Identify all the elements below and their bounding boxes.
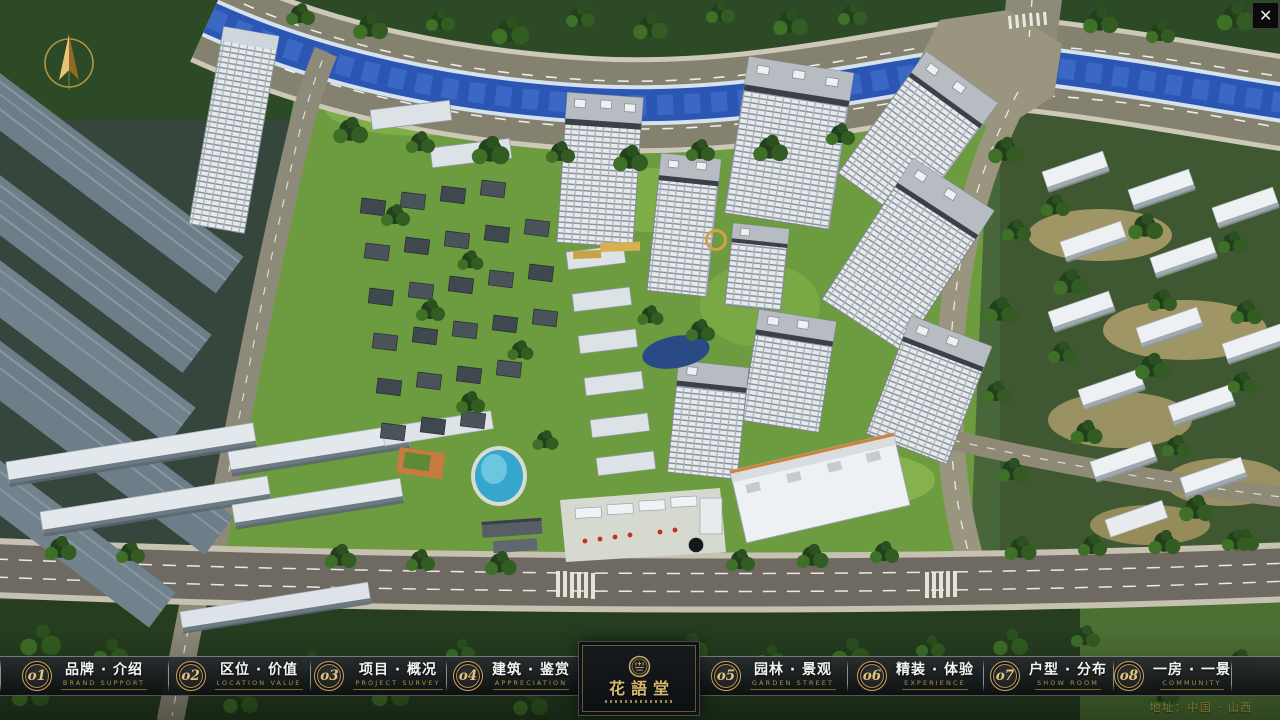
nav-number-badge: o8 — [1114, 661, 1144, 691]
nav-label-en: BRAND SUPPORT — [61, 679, 147, 690]
nav-label-zh: 建筑 · 鉴赏 — [492, 662, 570, 678]
brand-name: 花語堂 — [603, 680, 675, 698]
nav-number-badge: o5 — [711, 661, 741, 691]
nav-label-zh: 品牌 · 介绍 — [65, 662, 143, 678]
app-window: ✕ o1 品牌 · 介绍BRAND SUPPORT o2 区位 · 价值LOCA… — [0, 0, 1280, 720]
nav-number-badge: o6 — [857, 661, 887, 691]
nav-label-en: SHOW ROOM — [1035, 679, 1101, 690]
main-boulevard — [0, 559, 1280, 599]
nav-filler — [1232, 657, 1280, 695]
nav-label-en: LOCATION VALUE — [215, 679, 304, 690]
nav-number-badge: o2 — [176, 661, 206, 691]
nav-item-brand-intro[interactable]: o1 品牌 · 介绍BRAND SUPPORT — [1, 657, 168, 695]
nav-label-zh: 项目 · 概况 — [359, 662, 437, 678]
close-button[interactable]: ✕ — [1252, 2, 1279, 29]
nav-item-floorplan-distribution[interactable]: o7 户型 · 分布SHOW ROOM — [984, 657, 1113, 695]
brand-subtitle-line — [605, 700, 673, 703]
nav-label-en: GARDEN STREET — [750, 679, 836, 690]
master-plan-rendering[interactable] — [0, 0, 1280, 720]
nav-item-location-value[interactable]: o2 区位 · 价值LOCATION VALUE — [169, 657, 310, 695]
brand-logo-panel[interactable]: 花語堂 — [578, 641, 700, 716]
nav-item-architecture-appreciation[interactable]: o4 建筑 · 鉴赏APPRECIATION — [447, 657, 576, 695]
nav-item-interior-experience[interactable]: o6 精装 · 体验EXPERIENCE — [848, 657, 983, 695]
nav-number-badge: o3 — [314, 661, 344, 691]
nav-number-badge: o7 — [990, 661, 1020, 691]
nav-item-project-survey[interactable]: o3 项目 · 概况PROJECT SURVEY — [311, 657, 446, 695]
nav-label-en: PROJECT SURVEY — [353, 679, 442, 690]
nav-label-en: COMMUNITY — [1160, 679, 1223, 690]
nav-number-badge: o4 — [453, 661, 483, 691]
nav-label-en: EXPERIENCE — [902, 679, 968, 690]
hua-yu-tang-seal-icon — [628, 655, 651, 678]
project-address: 地址：中国 · 山西 — [1150, 699, 1254, 715]
nav-item-room-view[interactable]: o8 一房 · 一景COMMUNITY — [1114, 657, 1231, 695]
nav-label-zh: 园林 · 景观 — [754, 662, 832, 678]
nav-label-en: APPRECIATION — [493, 679, 569, 690]
nav-label-zh: 区位 · 价值 — [220, 662, 298, 678]
nav-item-garden-landscape[interactable]: o5 园林 · 景观GARDEN STREET — [700, 657, 847, 695]
nav-label-zh: 精装 · 体验 — [896, 662, 974, 678]
nav-number-badge: o1 — [22, 661, 52, 691]
nav-label-zh: 户型 · 分布 — [1029, 662, 1107, 678]
nav-label-zh: 一房 · 一景 — [1153, 662, 1231, 678]
north-arrow-icon[interactable] — [34, 30, 104, 104]
